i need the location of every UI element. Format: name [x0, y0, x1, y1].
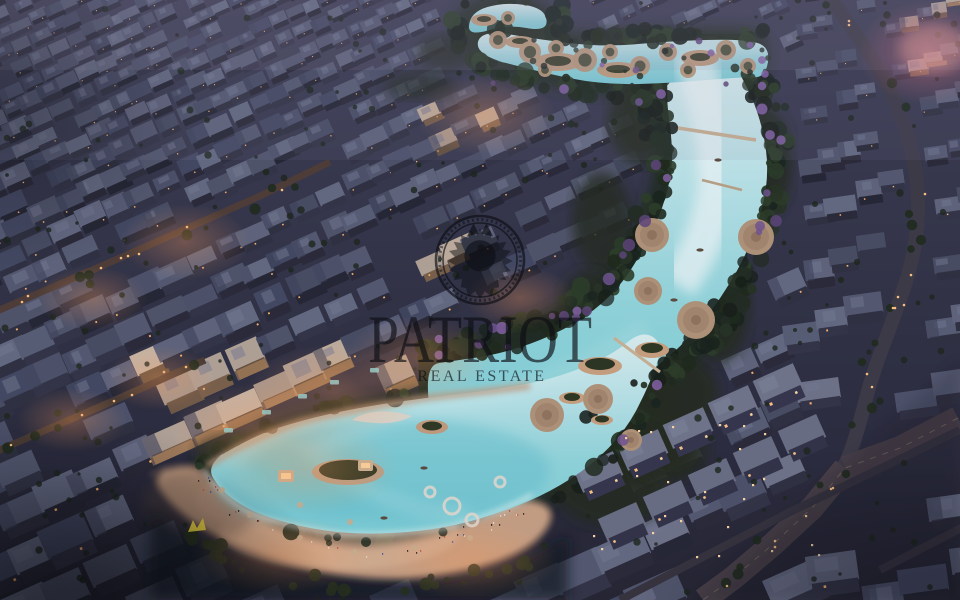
svg-text:REAL ESTATE: REAL ESTATE: [417, 368, 546, 385]
svg-text:PATRIOT: PATRIOT: [368, 301, 592, 377]
